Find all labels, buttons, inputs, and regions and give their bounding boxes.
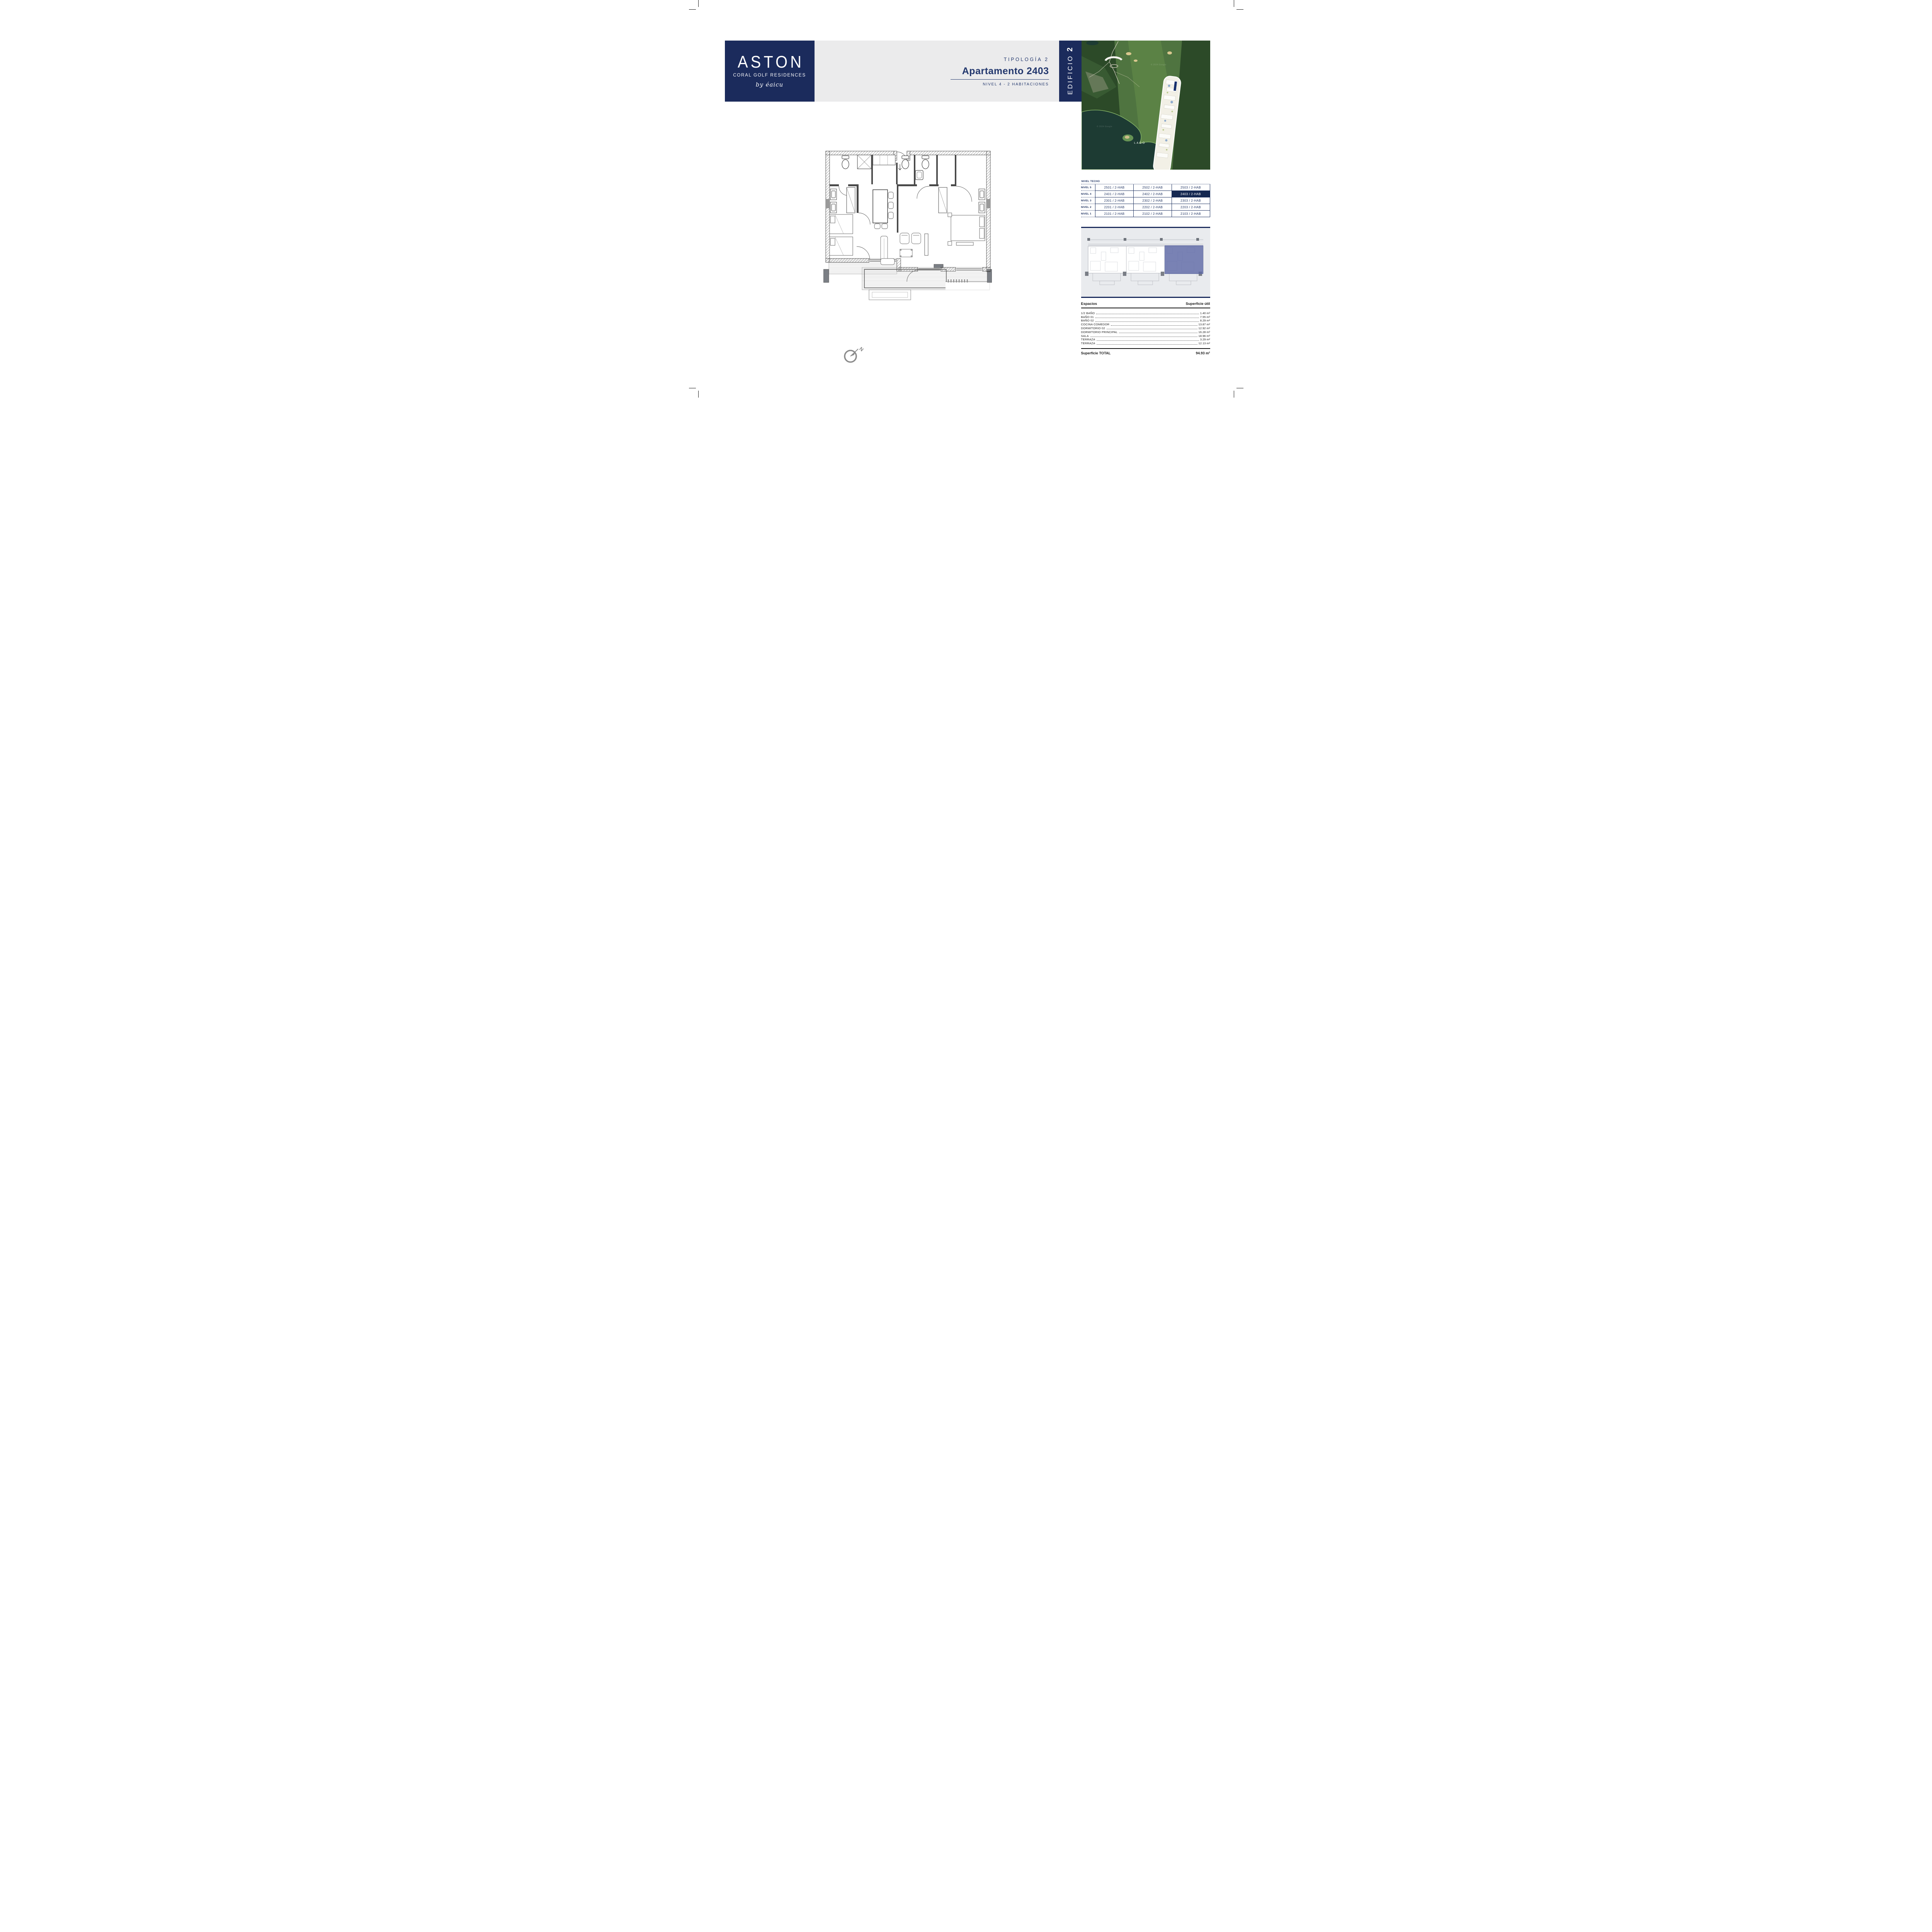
total-value: 94.93 m² xyxy=(1196,351,1210,355)
crop-mark xyxy=(698,391,699,398)
crop-mark xyxy=(698,0,699,7)
unit-cell: 2501 / 2-HAB xyxy=(1095,184,1133,191)
map-watermark: © 2024 Google xyxy=(1151,64,1166,66)
area-row: 1/2 BAÑO1.40 m² xyxy=(1081,311,1210,315)
bed-single xyxy=(830,237,853,255)
brand-subtitle: CORAL GOLF RESIDENCES xyxy=(733,73,806,78)
window xyxy=(826,199,830,208)
floor-overview-plan xyxy=(1081,228,1210,297)
room-area: 18.96 m² xyxy=(1199,334,1210,338)
lake-label: LAGO xyxy=(1134,142,1146,145)
brand-name: ASTON xyxy=(738,54,804,70)
table-row: NIVEL 3 2301 / 2-HAB 2302 / 2-HAB 2303 /… xyxy=(1081,197,1210,204)
typology-label: TIPOLOGÍA 2 xyxy=(887,57,1049,62)
room-area: 13.87 m² xyxy=(1199,323,1210,326)
room-name: BAÑO 02 xyxy=(1081,319,1094,322)
level-label: NIVEL 4 xyxy=(1081,191,1095,197)
room-area: 8.29 m² xyxy=(1200,319,1210,322)
unit-cell-highlighted: 2403 / 2-HAB xyxy=(1172,191,1210,197)
closet xyxy=(847,187,855,213)
levels-units-table: NIVEL TECHO NIVEL 5 2501 / 2-HAB 2502 / … xyxy=(1081,180,1210,217)
room-name: TERRAZA xyxy=(1081,342,1095,345)
bed-king xyxy=(948,213,985,245)
apartment-floor-plan xyxy=(823,149,992,317)
toilet-icon xyxy=(842,156,849,169)
room-name: DORMITORIO 02 xyxy=(1081,327,1105,330)
armchair xyxy=(912,233,921,244)
room-name: COCINA COMEDOR xyxy=(1081,323,1110,326)
satellite-image xyxy=(1082,41,1210,170)
levels-corner-label: NIVEL TECHO xyxy=(1082,180,1210,183)
table-row: NIVEL 4 2401 / 2-HAB 2402 / 2-HAB 2403 /… xyxy=(1081,191,1210,197)
unit-cell: 2502 / 2-HAB xyxy=(1133,184,1172,191)
room-area: 12.92 m² xyxy=(1199,327,1210,330)
unit-cell: 2201 / 2-HAB xyxy=(1095,204,1133,211)
brochure-page: ASTON CORAL GOLF RESIDENCES by éaicu TIP… xyxy=(689,0,1243,398)
brand-byline: by éaicu xyxy=(756,81,784,88)
unit-cell: 2303 / 2-HAB xyxy=(1172,197,1210,204)
unit-cell: 2203 / 2-HAB xyxy=(1172,204,1210,211)
table-row: NIVEL 5 2501 / 2-HAB 2502 / 2-HAB 2503 /… xyxy=(1081,184,1210,191)
unit-cell: 2103 / 2-HAB xyxy=(1172,211,1210,217)
areas-table: Espacios Superficie útil 1/2 BAÑO1.40 m²… xyxy=(1081,302,1210,355)
svg-text:N: N xyxy=(858,346,865,353)
room-area: 16.28 m² xyxy=(1199,330,1210,334)
sofa xyxy=(881,236,895,265)
unit-cell: 2503 / 2-HAB xyxy=(1172,184,1210,191)
room-name: TERRAZA xyxy=(1081,338,1095,341)
entry-arrow-icon xyxy=(898,164,901,170)
crop-mark xyxy=(1234,391,1234,398)
unit-cell: 2402 / 2-HAB xyxy=(1133,191,1172,197)
unit-cell: 2102 / 2-HAB xyxy=(1133,211,1172,217)
crop-mark xyxy=(1236,388,1243,388)
room-area: 7.55 m² xyxy=(1200,315,1210,319)
armchair xyxy=(900,233,909,244)
window xyxy=(986,199,990,208)
area-row: DORMITORIO 0212.92 m² xyxy=(1081,326,1210,330)
tv-console xyxy=(925,234,928,255)
room-name: 1/2 BAÑO xyxy=(1081,311,1095,315)
unit-cell: 2202 / 2-HAB xyxy=(1133,204,1172,211)
title-rule xyxy=(951,79,1049,80)
level-label: NIVEL 3 xyxy=(1081,197,1095,204)
toilet-icon xyxy=(922,156,929,169)
room-name: BAÑO 01 xyxy=(1081,315,1094,319)
closet xyxy=(939,187,947,213)
coffee-table xyxy=(900,249,912,257)
unit-cell: 2301 / 2-HAB xyxy=(1095,197,1133,204)
table-row: NIVEL 1 2101 / 2-HAB 2102 / 2-HAB 2103 /… xyxy=(1081,211,1210,217)
area-row: SALA18.96 m² xyxy=(1081,334,1210,338)
level-label: NIVEL 2 xyxy=(1081,204,1095,211)
header-band: TIPOLOGÍA 2 Apartamento 2403 NIVEL 4 - 2… xyxy=(815,41,1059,102)
unit-cell: 2101 / 2-HAB xyxy=(1095,211,1133,217)
crop-mark xyxy=(1236,9,1243,10)
room-area: 1.40 m² xyxy=(1200,311,1210,315)
toilet-icon xyxy=(902,156,909,169)
crop-mark xyxy=(689,388,696,388)
kitchen-island xyxy=(873,190,888,223)
unit-cell: 2302 / 2-HAB xyxy=(1133,197,1172,204)
page-title: Apartamento 2403 xyxy=(887,66,1049,77)
highlighted-unit-2403 xyxy=(1165,245,1203,274)
area-row: TERRAZA3.29 m² xyxy=(1081,338,1210,342)
terrace-main xyxy=(862,267,990,290)
room-name: DORMITORIO PRINCIPAL xyxy=(1081,330,1118,334)
level-label: NIVEL 5 xyxy=(1081,184,1095,191)
areas-col-space: Espacios xyxy=(1081,302,1097,306)
areas-col-area: Superficie útil xyxy=(1186,302,1210,306)
brand-logo: ASTON CORAL GOLF RESIDENCES by éaicu xyxy=(725,41,815,102)
unit-cell: 2401 / 2-HAB xyxy=(1095,191,1133,197)
room-area: 3.29 m² xyxy=(1200,338,1210,341)
area-row: BAÑO 017.55 m² xyxy=(1081,315,1210,319)
building-number: 2 xyxy=(1066,48,1075,52)
building-label-panel: EDIFICIO 2 xyxy=(1059,41,1082,102)
total-rule xyxy=(1081,348,1210,349)
area-row: BAÑO 028.29 m² xyxy=(1081,319,1210,323)
floor-overview-panel xyxy=(1081,227,1210,298)
room-area: 12.13 m² xyxy=(1199,342,1210,345)
crop-mark xyxy=(1234,0,1234,7)
location-satellite-map: LAGO © 2024 Google © 2024 Google xyxy=(1082,41,1210,170)
bed-single xyxy=(830,214,853,234)
north-arrow-icon: N xyxy=(842,343,866,366)
map-watermark: © 2024 Google xyxy=(1097,126,1112,128)
room-name: SALA xyxy=(1081,334,1089,338)
total-label: Superficie TOTAL xyxy=(1081,351,1111,355)
sink-icon xyxy=(915,170,923,180)
kitchen-counter xyxy=(873,155,895,165)
level-label: NIVEL 1 xyxy=(1081,211,1095,217)
pillar xyxy=(823,269,829,282)
area-row: DORMITORIO PRINCIPAL16.28 m² xyxy=(1081,330,1210,334)
crop-mark xyxy=(689,9,696,10)
level-info: NIVEL 4 - 2 HABITACIONES xyxy=(887,82,1049,87)
terrace-steps xyxy=(869,290,911,300)
area-row: TERRAZA12.13 m² xyxy=(1081,341,1210,345)
building-word: EDIFICIO xyxy=(1066,55,1074,95)
table-row: NIVEL 2 2201 / 2-HAB 2202 / 2-HAB 2203 /… xyxy=(1081,204,1210,211)
area-row: COCINA COMEDOR13.87 m² xyxy=(1081,322,1210,326)
shower-icon xyxy=(857,155,871,169)
